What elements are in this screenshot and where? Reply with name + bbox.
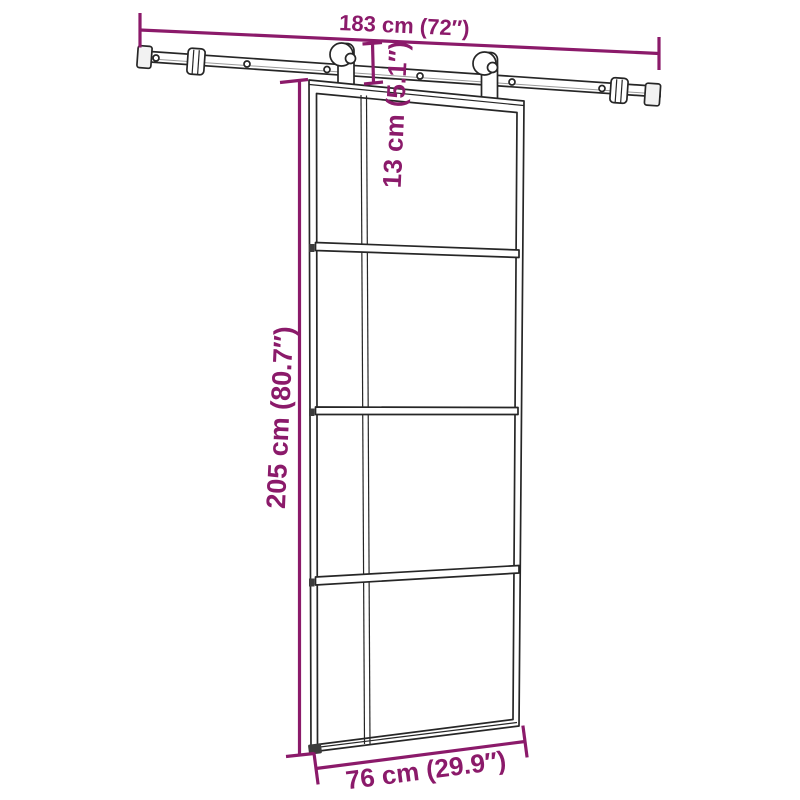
left-hanger-bolt: [346, 54, 356, 64]
dimension-tick: [364, 82, 383, 84]
dimension-line: [373, 43, 374, 83]
door-width-label: 76 cm (29.9″): [344, 745, 508, 796]
rail-screw: [417, 73, 423, 79]
product-dimension-diagram: 183 cm (72″) 13 cm (5.1″) 205 cm (80.7″)…: [0, 0, 800, 800]
dimension-tick: [314, 753, 318, 785]
dimension-tick: [280, 80, 308, 83]
divider-end-shadow: [309, 409, 315, 417]
divider-end-shadow: [309, 244, 315, 252]
rail-screw: [599, 86, 605, 92]
right-hanger-bolt: [488, 63, 498, 73]
rail-width-label: 183 cm (72″): [339, 10, 470, 41]
rail-screw: [244, 61, 250, 67]
rail-stop-right: [610, 77, 629, 103]
rail-stop-left: [187, 48, 206, 75]
rail-screw: [324, 67, 330, 73]
glass-door: [308, 80, 524, 755]
dimension-tick: [363, 43, 383, 45]
door-height-label: 205 cm (80.7″): [261, 326, 299, 510]
divider-end-shadow: [309, 579, 315, 587]
rail-stop-right-body: [610, 77, 629, 103]
rail-end-cap-left: [137, 46, 153, 69]
door-outer-frame: [309, 80, 524, 752]
rail-screw: [509, 79, 515, 85]
rail-stop-left-body: [187, 48, 206, 75]
rail-end-cap-right: [644, 83, 660, 106]
dimension-door-height: 205 cm (80.7″): [261, 80, 314, 757]
dimension-tick: [523, 726, 527, 758]
rail-screw: [153, 55, 159, 61]
dimension-tick: [286, 754, 314, 757]
glass-divider: [316, 407, 519, 415]
sliding-door-diagram: 183 cm (72″) 13 cm (5.1″) 205 cm (80.7″)…: [0, 0, 800, 800]
